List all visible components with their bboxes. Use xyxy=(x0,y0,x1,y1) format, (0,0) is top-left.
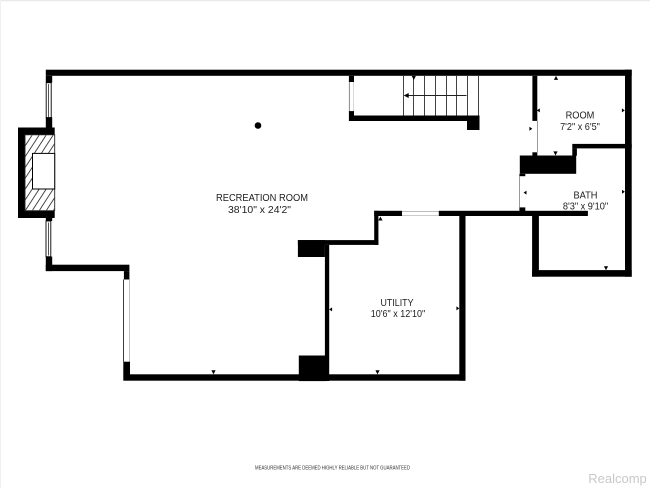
svg-text:8'3" x 9'10": 8'3" x 9'10" xyxy=(563,201,609,212)
svg-text:RECREATION ROOM: RECREATION ROOM xyxy=(216,193,308,204)
svg-text:UTILITY: UTILITY xyxy=(381,298,414,309)
svg-text:10'6" x 12'10": 10'6" x 12'10" xyxy=(371,309,426,320)
svg-text:7'2" x 6'5": 7'2" x 6'5" xyxy=(560,122,600,133)
svg-text:ROOM: ROOM xyxy=(566,111,595,122)
svg-text:BATH: BATH xyxy=(574,191,598,202)
svg-text:MEASUREMENTS ARE DEEMED HIGHLY: MEASUREMENTS ARE DEEMED HIGHLY RELIABLE … xyxy=(255,465,410,471)
svg-text:Realcomp: Realcomp xyxy=(588,471,647,486)
svg-text:38'10" x 24'2": 38'10" x 24'2" xyxy=(228,205,291,216)
